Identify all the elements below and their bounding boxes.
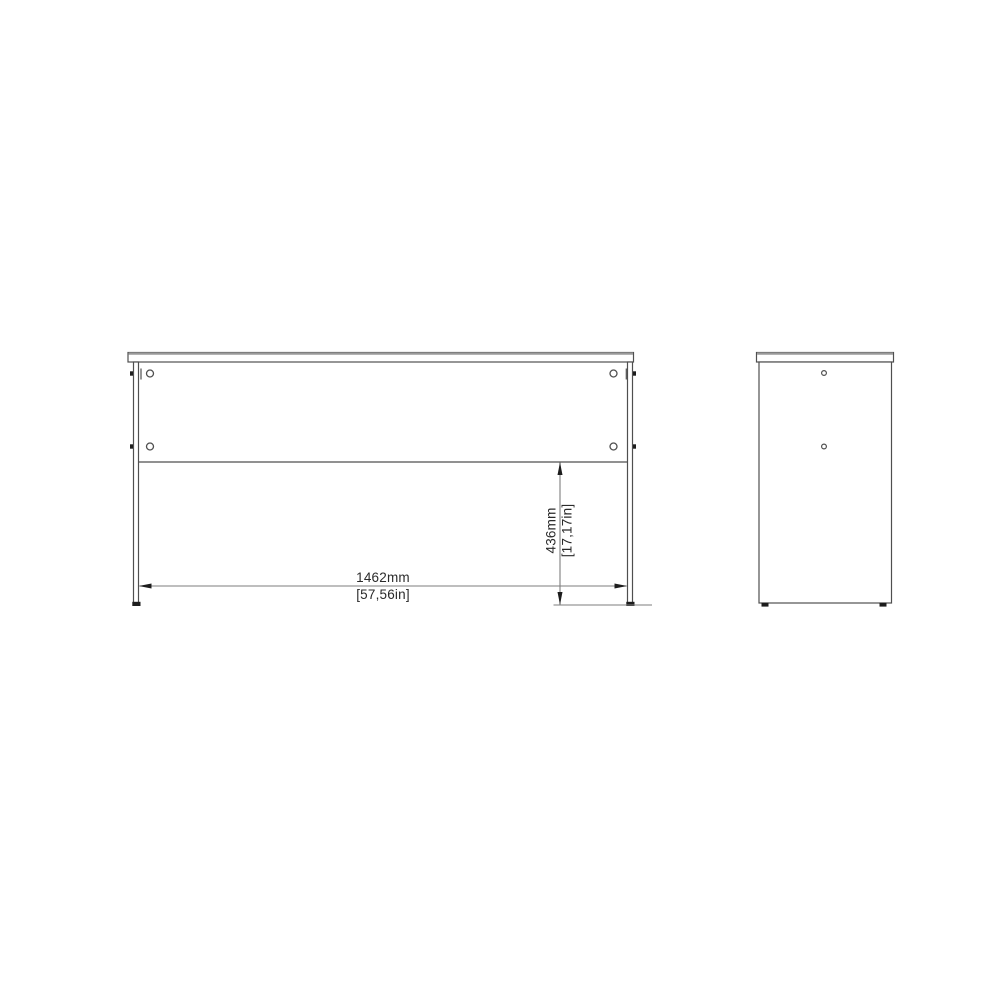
arrowhead-right-icon	[615, 584, 628, 589]
right-leg	[628, 362, 633, 603]
height-label-mm: 436mm	[544, 507, 559, 553]
screw-hole	[147, 370, 154, 377]
arrowhead-down-icon	[558, 592, 563, 605]
side-rear-foot	[880, 603, 887, 607]
side-body-panel	[759, 362, 892, 603]
screw-hole	[610, 443, 617, 450]
height-dimension: 436mm [17,17in]	[544, 462, 653, 605]
screw-hole	[822, 371, 827, 376]
screw-hole	[822, 444, 827, 449]
height-label-in: [17,17in]	[560, 504, 575, 558]
side-view	[757, 353, 894, 607]
dowel-tick	[130, 444, 133, 448]
screw-hole	[610, 370, 617, 377]
width-label-mm: 1462mm	[356, 570, 410, 585]
left-leg	[134, 362, 139, 603]
drawing-canvas: 1462mm [57,56in] 436mm [17,17in]	[0, 0, 1000, 1000]
width-dimension: 1462mm [57,56in]	[139, 570, 628, 602]
width-label-in: [57,56in]	[356, 587, 410, 602]
dowel-tick	[633, 371, 636, 375]
arrowhead-left-icon	[139, 584, 152, 589]
arrowhead-up-icon	[558, 462, 563, 475]
screw-hole	[147, 443, 154, 450]
left-foot	[132, 602, 140, 606]
technical-drawing-page: 1462mm [57,56in] 436mm [17,17in]	[0, 0, 1000, 1000]
dowel-tick	[130, 371, 133, 375]
dowel-tick	[633, 444, 636, 448]
side-front-foot	[762, 603, 769, 607]
